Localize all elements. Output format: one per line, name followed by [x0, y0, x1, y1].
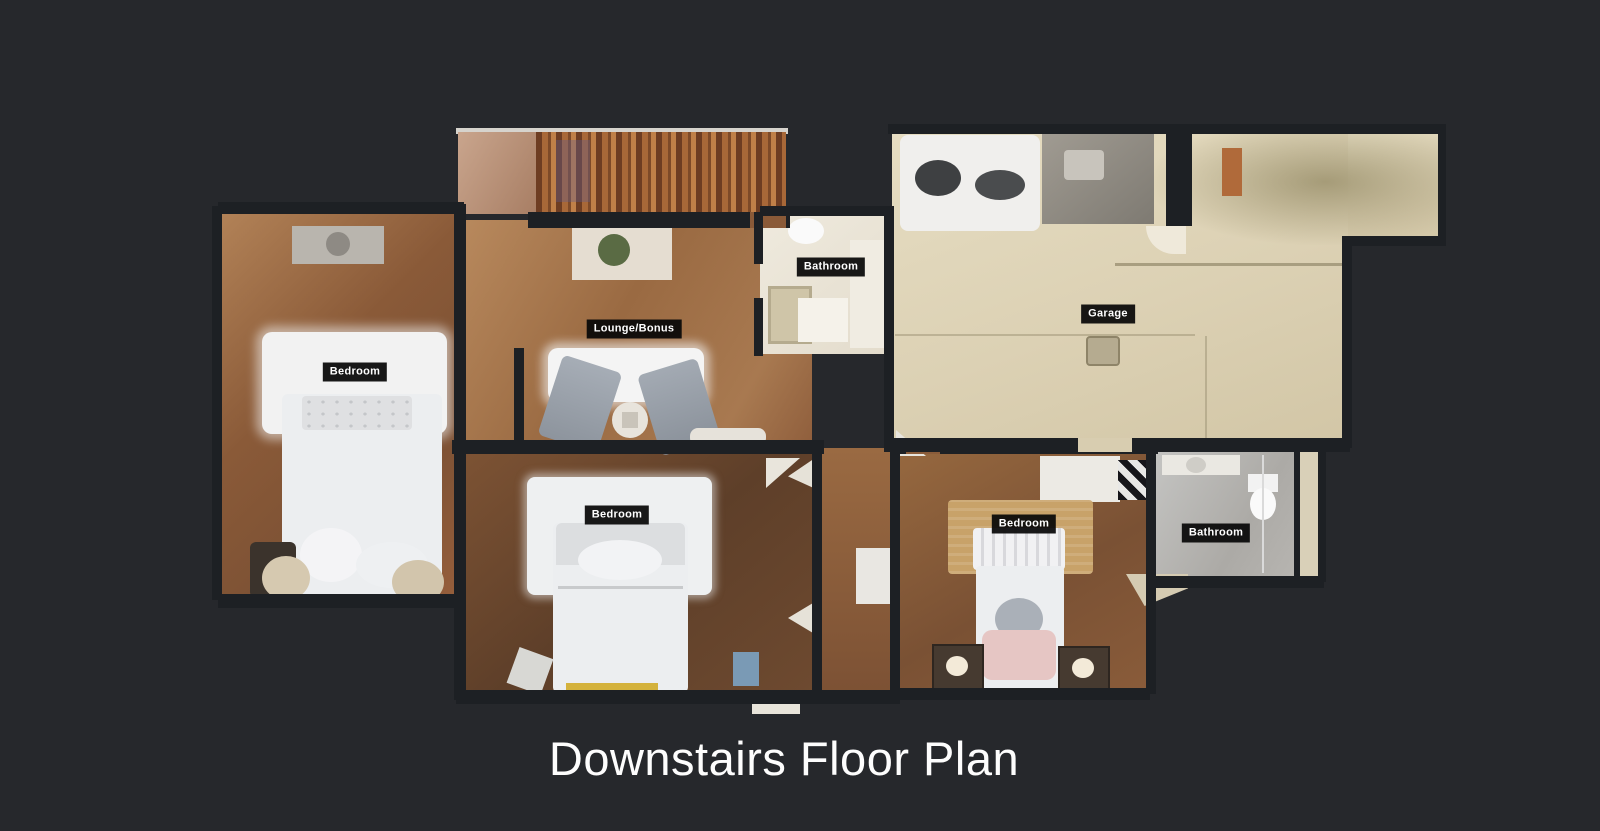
room-label-bathroom-lower: Bathroom — [1182, 524, 1250, 543]
room-label-bedroom-middle: Bedroom — [585, 506, 649, 525]
wall — [212, 206, 222, 600]
bath-mat-upper — [798, 298, 848, 342]
wall — [218, 594, 466, 608]
wall — [1348, 236, 1446, 246]
wall — [218, 202, 464, 214]
wall — [452, 440, 824, 454]
bedroom-left-headboard — [302, 396, 412, 430]
room-label-lounge-bonus: Lounge/Bonus — [587, 320, 682, 339]
page-title: Downstairs Floor Plan — [549, 731, 1019, 786]
wall — [898, 688, 1150, 700]
garage-bathroom-doorway — [1078, 438, 1132, 452]
bedroom-middle-blanket-fold — [558, 586, 683, 589]
garage-floor-seam-1 — [1115, 263, 1345, 266]
room-label-bedroom-right: Bedroom — [992, 515, 1056, 534]
garage-car-detail-1 — [915, 160, 961, 196]
toilet-upper — [788, 218, 824, 244]
garage-storage-box — [1064, 150, 1104, 180]
wall — [884, 206, 894, 452]
wall — [1166, 130, 1192, 226]
wall — [890, 440, 900, 702]
lounge-side-table-top — [622, 412, 638, 428]
garage-car-detail-2 — [975, 170, 1025, 200]
floor-plan[interactable]: Bedroom Lounge/Bonus Bathroom Garage Bed… — [0, 0, 1600, 831]
garage-floor-item — [1086, 336, 1120, 366]
wall — [1342, 236, 1352, 448]
sink-basin — [1186, 457, 1206, 473]
shower-glass — [1262, 455, 1264, 573]
wall — [754, 298, 763, 356]
bedroom-middle-pillow — [578, 540, 662, 580]
wall — [812, 440, 822, 702]
stair-shadow-tint — [556, 140, 590, 202]
dresser-item — [326, 232, 350, 256]
bedroom-middle-blue-item — [733, 652, 759, 686]
garage-shelf — [1222, 148, 1242, 196]
wall — [754, 212, 763, 264]
room-label-bedroom-left: Bedroom — [323, 363, 387, 382]
wall — [760, 206, 892, 216]
wall — [1438, 124, 1446, 244]
wall — [514, 348, 524, 444]
wall — [456, 690, 900, 704]
wall — [1146, 452, 1156, 694]
lounge-plant — [598, 234, 630, 266]
bedroom-right-headboard — [973, 528, 1065, 570]
garage-floor-seam-3 — [1205, 336, 1207, 442]
bedroom-right-bench — [1040, 456, 1120, 502]
stair-landing — [458, 132, 536, 214]
garage-floor-seam-2 — [895, 334, 1195, 336]
room-label-garage: Garage — [1081, 305, 1135, 324]
wall — [1318, 450, 1326, 582]
garage-floor-stain — [1150, 130, 1442, 245]
wall — [1294, 452, 1300, 580]
room-label-bathroom-upper: Bathroom — [797, 258, 865, 277]
nightstand-left-lamp — [946, 656, 968, 676]
bedroom-right-pink-blanket — [982, 630, 1056, 680]
nightstand-right-lamp — [1072, 658, 1094, 678]
vanity-upper — [850, 240, 884, 348]
hallway-door-panel — [856, 548, 892, 604]
